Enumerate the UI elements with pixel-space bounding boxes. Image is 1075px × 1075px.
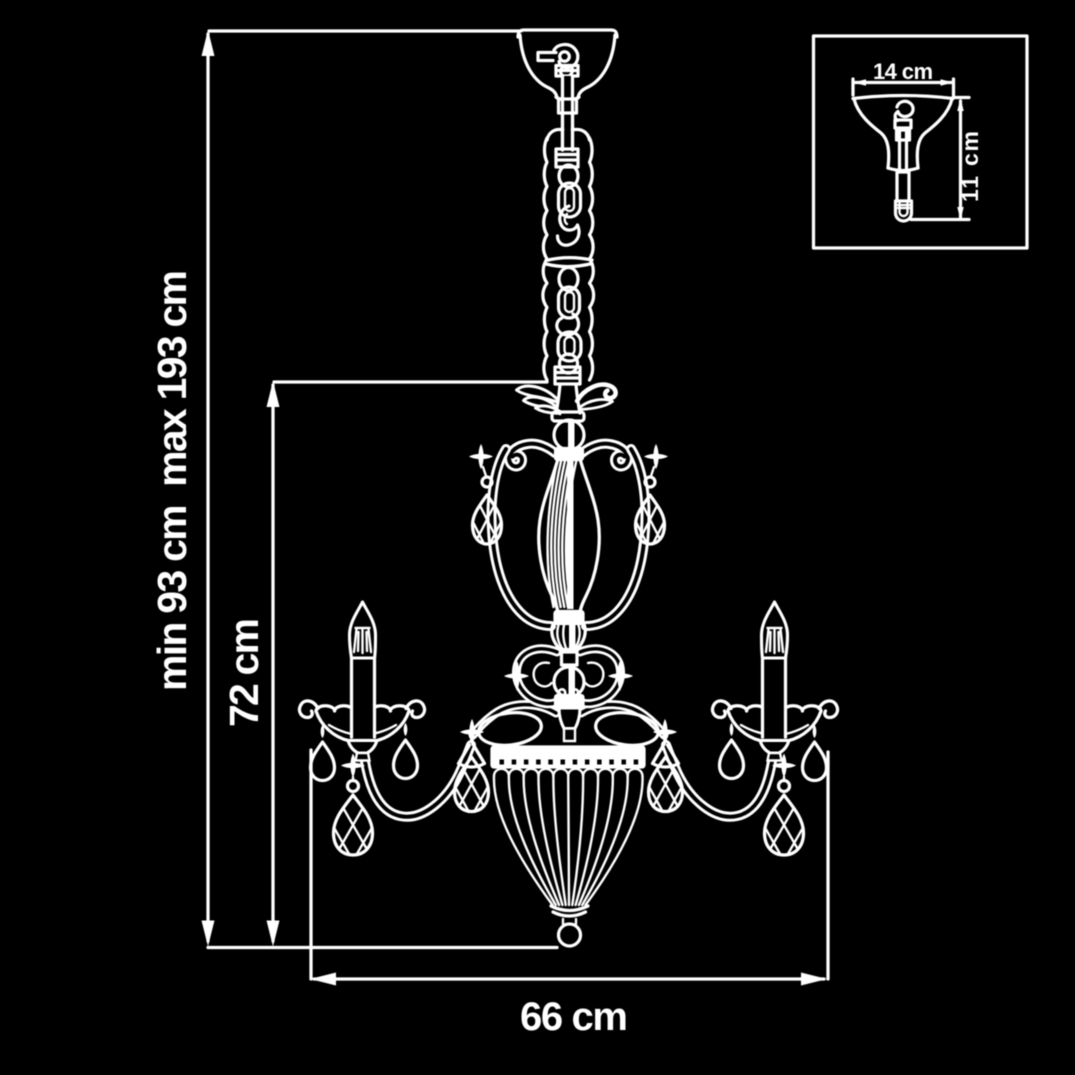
svg-text:66 cm: 66 cm <box>520 995 628 1039</box>
svg-text:min 93 cm max 193 cm: min 93 cm max 193 cm <box>149 270 195 691</box>
svg-text:72 cm: 72 cm <box>221 618 267 727</box>
svg-text:14 cm: 14 cm <box>873 59 933 84</box>
svg-text:11 cm: 11 cm <box>957 131 983 202</box>
